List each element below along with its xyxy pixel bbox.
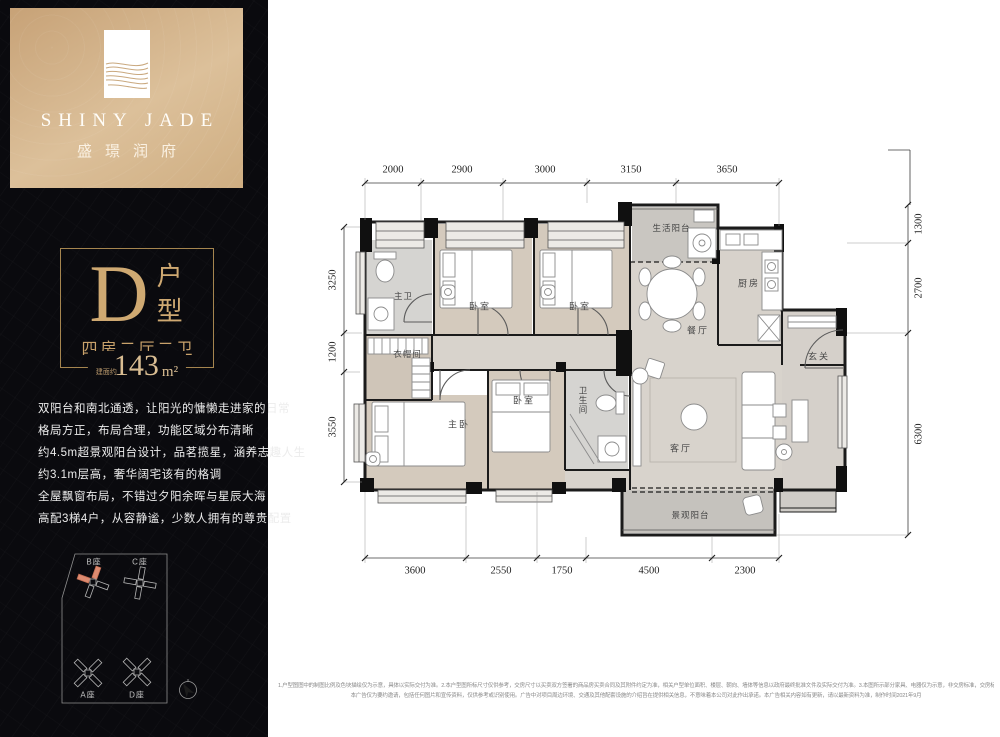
left-panel: SHINY JADE 盛璟润府 D 户型 四房二厅二卫 建面约 143 m² 双… bbox=[0, 0, 268, 737]
room-label-bedroom-b: 卧室 bbox=[567, 300, 591, 313]
unit-area: 建面约 143 m² bbox=[88, 351, 186, 381]
room-label-living: 客厅 bbox=[668, 442, 692, 455]
description-line: 约4.5m超景观阳台设计，品茗揽星，涵养志趣人生 bbox=[38, 442, 248, 464]
dim-bottom-5: 2300 bbox=[735, 566, 756, 577]
dim-right-3: 6300 bbox=[914, 424, 925, 445]
dim-bottom-4: 4500 bbox=[639, 566, 660, 577]
description-line: 全屋飘窗布局，不错过夕阳余晖与星辰大海 bbox=[38, 486, 248, 508]
description-line: 双阳台和南北通透，让阳光的慵懒走进家的日常 bbox=[38, 398, 248, 420]
building-a bbox=[74, 659, 102, 687]
dim-bottom-3: 1750 bbox=[552, 566, 573, 577]
disclaimer: 1.户型图图中的制图比例及色块描绘仅为示意，具体以实际交付为准。2.本户型图所标… bbox=[278, 681, 994, 701]
room-label-life-balcony: 生活阳台 bbox=[651, 222, 690, 234]
dim-left-1: 3250 bbox=[328, 270, 339, 291]
description-line: 高配3梯4户，从容静谧，少数人拥有的尊贵配置 bbox=[38, 508, 248, 530]
dim-bottom-1: 3600 bbox=[405, 566, 426, 577]
dim-left-2: 1200 bbox=[328, 342, 339, 363]
brand-header: SHINY JADE 盛璟润府 bbox=[10, 8, 243, 188]
room-label-dining: 餐厅 bbox=[685, 324, 709, 337]
room-label-bedroom-a: 卧室 bbox=[467, 300, 491, 313]
dim-bottom-2: 2550 bbox=[491, 566, 512, 577]
poster: 主卫 卧室 卧室 生活阳台 厨房 餐厅 玄关 衣帽间 主卧 卧室 卫生间 客厅 … bbox=[0, 0, 1000, 737]
dim-top-5: 3650 bbox=[717, 165, 738, 176]
dim-top-2: 2900 bbox=[452, 165, 473, 176]
building-b bbox=[77, 566, 109, 598]
room-label-kitchen: 厨房 bbox=[736, 277, 760, 290]
building-label-a: A座 bbox=[80, 690, 95, 701]
brand-name-en: SHINY JADE bbox=[10, 110, 243, 132]
floor-plan-drawing bbox=[270, 140, 1000, 600]
unit-type-card: D 户型 四房二厅二卫 建面约 143 m² bbox=[60, 248, 214, 368]
room-label-foyer: 玄关 bbox=[806, 350, 830, 363]
room-label-master-bath: 主卫 bbox=[393, 290, 413, 302]
unit-type-label: 户型 bbox=[157, 259, 185, 329]
north-compass-icon bbox=[180, 679, 197, 699]
description-line: 约3.1m层高，奢华阔宅该有的格调 bbox=[38, 464, 248, 486]
description-block: 双阳台和南北通透，让阳光的慵懒走进家的日常 格局方正，布局合理，功能区域分布清晰… bbox=[38, 398, 248, 530]
disclaimer-line-2: 本广告仅为要约邀请，包括任何图片和宣传资料，仅供参考或识别使用。广告中对项目周边… bbox=[278, 691, 994, 701]
building-label-d: D座 bbox=[129, 690, 145, 701]
unit-letter: D bbox=[89, 255, 148, 333]
building-c bbox=[124, 567, 156, 599]
room-label-master-bedroom: 主卧 bbox=[446, 418, 470, 431]
site-plan: B座 C座 A座 D座 bbox=[30, 548, 250, 733]
unit-area-value: 143 bbox=[114, 351, 159, 381]
unit-area-prefix: 建面约 bbox=[96, 369, 111, 381]
disclaimer-line-1: 1.户型图图中的制图比例及色块描绘仅为示意，具体以实际交付为准。2.本户型图所标… bbox=[278, 681, 994, 691]
room-label-cloakroom: 衣帽间 bbox=[392, 348, 422, 360]
building-d bbox=[123, 658, 151, 686]
dim-left-3: 3550 bbox=[328, 417, 339, 438]
dim-top-3: 3000 bbox=[535, 165, 556, 176]
dim-right-2: 2700 bbox=[914, 278, 925, 299]
dim-top-4: 3150 bbox=[621, 165, 642, 176]
room-label-bathroom: 卫生间 bbox=[577, 385, 589, 415]
description-line: 格局方正，布局合理，功能区域分布清晰 bbox=[38, 420, 248, 442]
dim-right-1: 1300 bbox=[914, 214, 925, 235]
brand-logo-icon bbox=[104, 30, 150, 98]
brand-name-cn: 盛璟润府 bbox=[10, 140, 243, 161]
building-label-b: B座 bbox=[86, 557, 101, 568]
room-label-bedroom-c: 卧室 bbox=[511, 394, 535, 407]
unit-area-unit: m² bbox=[162, 365, 178, 381]
building-label-c: C座 bbox=[132, 557, 148, 568]
room-label-view-balcony: 景观阳台 bbox=[670, 509, 709, 521]
dim-top-1: 2000 bbox=[383, 165, 404, 176]
